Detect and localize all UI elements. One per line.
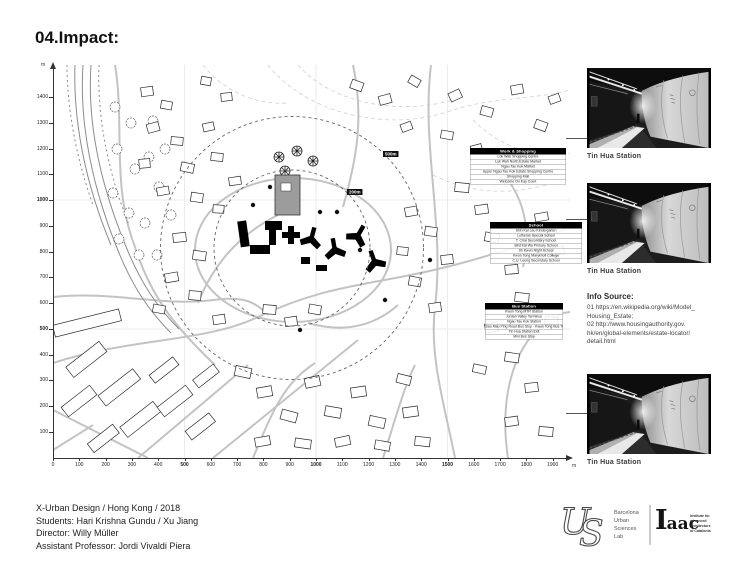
info-source-heading: Info Source: xyxy=(587,292,719,301)
station-photo-1 xyxy=(587,68,711,148)
photo-connector-line xyxy=(566,413,587,414)
photo-caption-3: Tin Hua Station xyxy=(587,459,641,466)
subway-platform-art xyxy=(587,374,711,454)
busl-logo: U S Barcelona Urban Sciences Lab xyxy=(560,502,640,552)
iaac-label-line: architecture xyxy=(690,524,711,528)
info-source-line: Housing_Estate; xyxy=(587,313,719,322)
x-axis xyxy=(53,458,566,459)
y-tick: 1300 xyxy=(2,120,48,126)
photo-connector-line xyxy=(566,219,587,220)
y-axis-arrow-icon xyxy=(50,62,56,69)
subway-platform-art xyxy=(587,183,711,263)
x-tick: 1900 xyxy=(538,462,568,468)
x-axis-unit: m xyxy=(572,463,576,469)
site-map: 500m 200m Work & Shopping Lok Wah Shoppi… xyxy=(53,65,570,458)
y-tick: 600 xyxy=(2,300,48,306)
radius-chip-200m: 200m xyxy=(347,189,378,201)
callout-school: School Shin Kai Lau KindergartenLutheran… xyxy=(490,222,582,305)
credit-line-director: Director: Willy Müller xyxy=(36,527,198,540)
page-title: 04.Impact: xyxy=(35,28,119,48)
y-tick: 900 xyxy=(2,223,48,229)
callout-work-shopping: Work & Shopping Lok Wah Shopping CentreL… xyxy=(470,148,566,221)
info-source-line: detail.html xyxy=(587,338,719,347)
radius-chip-label: 500m xyxy=(383,151,399,157)
station-photo-2 xyxy=(587,183,711,263)
y-tick: 400 xyxy=(2,352,48,358)
callout-items: Lok Wah Shopping CentreLok Wah North Est… xyxy=(470,155,566,185)
y-tick: 1000 xyxy=(2,197,48,203)
tree-symbols xyxy=(108,102,176,260)
callout-item: C.U. Leung Secondary School xyxy=(490,259,582,264)
poster-board: 04.Impact: xyxy=(0,0,730,564)
busl-monogram-s: S xyxy=(579,514,604,552)
y-tick: 1400 xyxy=(2,94,48,100)
iaac-label-line: of Catalonia xyxy=(690,529,712,533)
info-source-line: hk/en/global-elements/estate-locator/ xyxy=(587,330,719,339)
callout-items: Kwun Tong MTR StationJordan Valley Termi… xyxy=(485,310,563,340)
info-source-line: 01 https://en.wikipedia.org/wiki/Model_ xyxy=(587,304,719,313)
info-source-line: 02 http://www.housingauthority.gov. xyxy=(587,321,719,330)
callout-item: Mini Bus Stop xyxy=(485,335,563,340)
busl-label-line: Lab xyxy=(614,534,623,540)
y-tick: 500 xyxy=(2,326,48,332)
y-tick: 1100 xyxy=(2,171,48,177)
y-tick: 700 xyxy=(2,274,48,280)
callout-bus-station: Bus Station Kwun Tong MTR StationJordan … xyxy=(485,303,563,376)
iaac-label-line: advanced xyxy=(690,519,707,523)
credit-line-assistant: Assistant Professor: Jordi Vivaldi Piera xyxy=(36,540,198,553)
info-source: Info Source: 01 https://en.wikipedia.org… xyxy=(587,292,719,347)
y-tick: 300 xyxy=(2,377,48,383)
y-tick: 1200 xyxy=(2,146,48,152)
photo-connector-line xyxy=(566,138,587,139)
callout-items: Shin Kai Lau KindergartenLutheran Specia… xyxy=(490,229,582,264)
subway-platform-art xyxy=(587,68,711,148)
credit-line-project: X-Urban Design / Hong Kong / 2018 xyxy=(36,502,198,515)
cross-tower-symbols xyxy=(274,146,318,176)
y-axis xyxy=(53,68,54,458)
iaac-label-line: Institute for xyxy=(690,514,710,518)
busl-label-line: Barcelona xyxy=(614,510,640,516)
radius-chip-500m: 500m xyxy=(383,151,414,163)
iaac-logo: Iaac Institute for advanced architecture… xyxy=(655,505,712,536)
y-axis-unit: m xyxy=(41,62,45,68)
project-credits: X-Urban Design / Hong Kong / 2018 Studen… xyxy=(36,502,198,552)
y-tick: 800 xyxy=(2,249,48,255)
x-axis-arrow-icon xyxy=(566,455,573,461)
radius-chip-label: 200m xyxy=(347,189,363,195)
photo-caption-2: Tin Hua Station xyxy=(587,268,641,275)
partner-logos: U S Barcelona Urban Sciences Lab Iaac In… xyxy=(556,498,716,552)
station-photo-3 xyxy=(587,374,711,454)
y-tick: 100 xyxy=(2,429,48,435)
photo-caption-1: Tin Hua Station xyxy=(587,153,641,160)
credit-line-students: Students: Hari Krishna Gundu / Xu Jiang xyxy=(36,515,198,528)
busl-label-line: Urban xyxy=(614,518,629,524)
busl-label-line: Sciences xyxy=(614,526,637,532)
y-tick: 200 xyxy=(2,403,48,409)
callout-item: Welcome On Kay Court xyxy=(470,180,566,185)
